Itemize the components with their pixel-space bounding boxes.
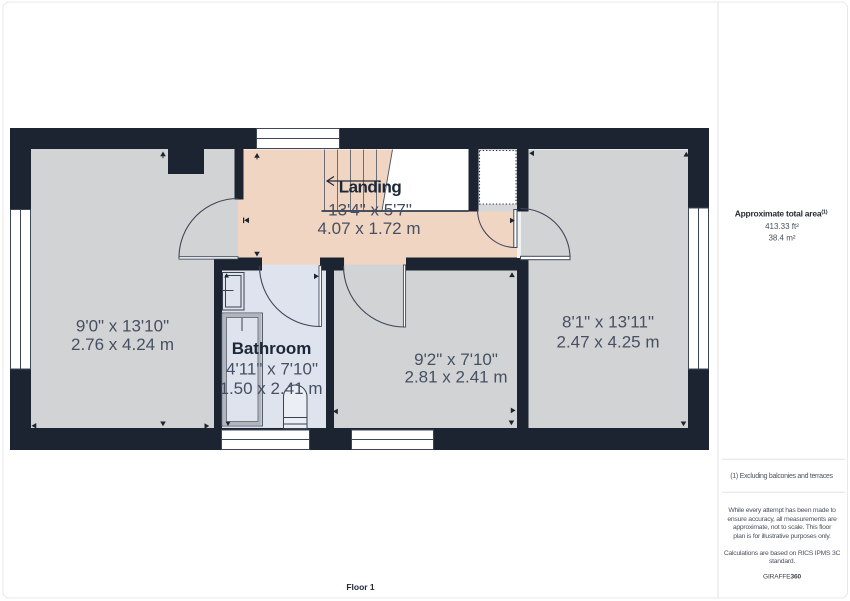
svg-text:Calculations are based on RICS: Calculations are based on RICS IPMS 3C xyxy=(724,550,841,557)
svg-text:13'4" x 5'7": 13'4" x 5'7" xyxy=(328,201,412,220)
svg-text:9'2" x 7'10": 9'2" x 7'10" xyxy=(414,350,498,369)
svg-text:8'1" x 13'11": 8'1" x 13'11" xyxy=(562,312,654,331)
svg-text:413.33 ft²: 413.33 ft² xyxy=(765,222,799,231)
svg-text:Floor 1: Floor 1 xyxy=(346,582,375,592)
svg-text:plan is for illustrative purpo: plan is for illustrative purposes only. xyxy=(733,533,831,540)
svg-text:ensure accuracy, all measureme: ensure accuracy, all measurements are xyxy=(727,516,837,523)
svg-text:GIRAFFE360: GIRAFFE360 xyxy=(763,574,801,581)
svg-text:1.50 x 2.41 m: 1.50 x 2.41 m xyxy=(219,379,322,398)
svg-text:2.76 x 4.24 m: 2.76 x 4.24 m xyxy=(71,335,174,354)
svg-text:(1) Excluding balconies and te: (1) Excluding balconies and terraces xyxy=(730,473,833,480)
svg-text:Landing: Landing xyxy=(339,178,402,197)
svg-text:4'11" x 7'10": 4'11" x 7'10" xyxy=(226,360,318,379)
svg-text:approximate, not to scale. Thi: approximate, not to scale. This floor xyxy=(733,524,832,531)
svg-text:Approximate total area(1): Approximate total area(1) xyxy=(735,209,828,219)
svg-text:9'0" x 13'10": 9'0" x 13'10" xyxy=(76,317,169,336)
svg-text:2.47 x 4.25 m: 2.47 x 4.25 m xyxy=(556,333,659,352)
svg-text:4.07 x 1.72 m: 4.07 x 1.72 m xyxy=(317,219,420,238)
svg-text:38.4 m²: 38.4 m² xyxy=(768,233,795,242)
svg-text:While every attempt has been m: While every attempt has been made to xyxy=(728,507,836,514)
svg-text:standard.: standard. xyxy=(769,558,795,565)
svg-text:2.81 x 2.41 m: 2.81 x 2.41 m xyxy=(404,368,507,387)
svg-text:Bathroom: Bathroom xyxy=(232,339,311,358)
